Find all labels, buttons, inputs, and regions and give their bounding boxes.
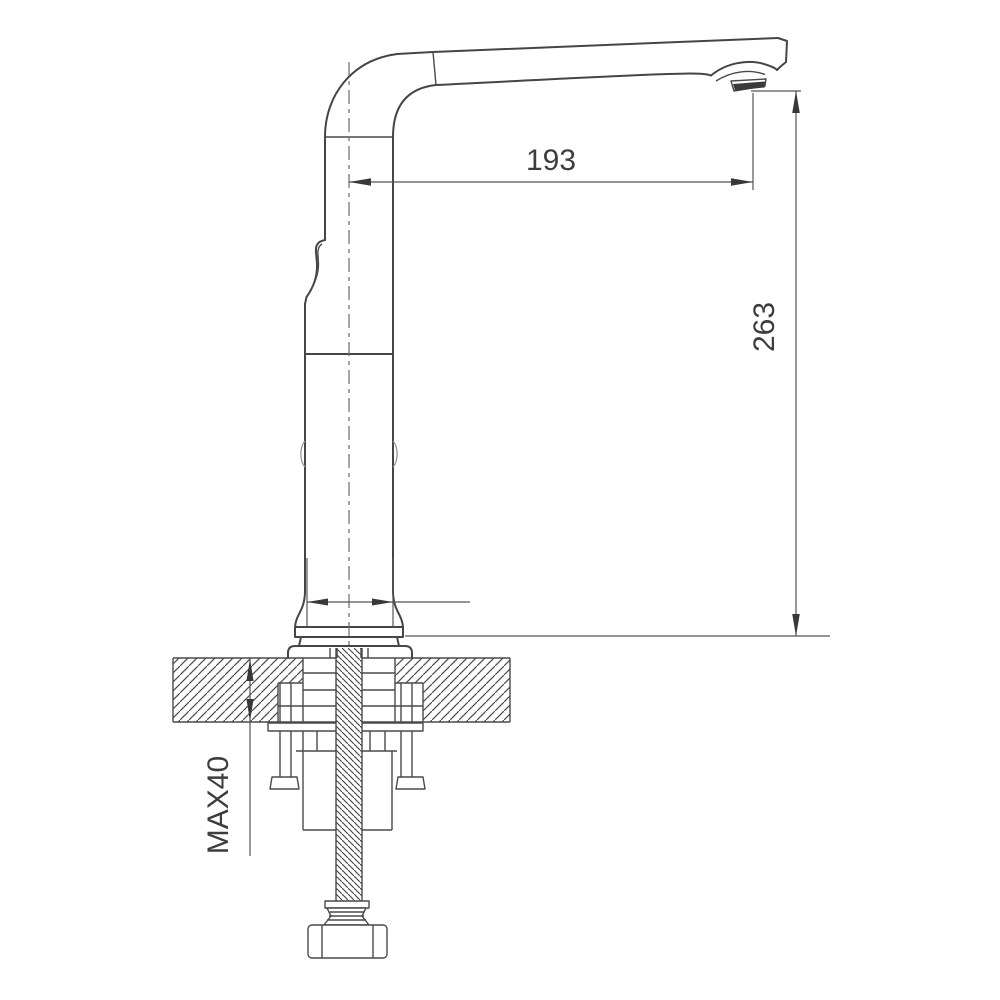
- dimension-label-spout-reach: 193: [526, 144, 576, 177]
- dimension-label-counter-thickness: MAX40: [202, 756, 235, 854]
- threaded-rod: [336, 648, 362, 902]
- dimension-spout-reach: 193: [349, 93, 753, 190]
- faucet-drawing-svg: 193 263 MAX40: [0, 0, 1000, 1000]
- dimension-overall-height: 263: [405, 91, 830, 636]
- dimension-base-diameter: [307, 558, 470, 627]
- faucet-handle-lever: [305, 240, 325, 304]
- technical-drawing-canvas: 193 263 MAX40: [0, 0, 1000, 1000]
- faucet-bend: [325, 52, 436, 137]
- aerator: [731, 79, 766, 91]
- clamp-bolt-right: [396, 731, 425, 789]
- mounting-bracket-assembly: [268, 648, 425, 958]
- mounting-nut: [308, 901, 387, 958]
- clamp-bolt-left: [270, 731, 299, 789]
- dimension-label-overall-height: 263: [748, 302, 781, 352]
- faucet-spout: [397, 38, 787, 91]
